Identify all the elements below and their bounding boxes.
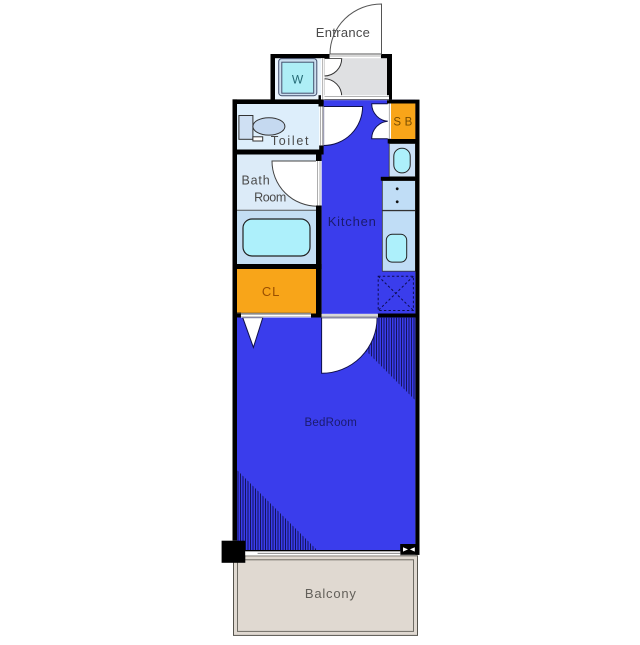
svg-text:Kitchen: Kitchen bbox=[328, 214, 377, 229]
svg-text:S B: S B bbox=[393, 117, 412, 129]
svg-text:Balcony: Balcony bbox=[305, 586, 357, 601]
svg-text:CL: CL bbox=[262, 284, 280, 299]
svg-text:Toilet: Toilet bbox=[271, 134, 310, 148]
svg-text:Bath: Bath bbox=[242, 174, 271, 188]
svg-text:W: W bbox=[292, 73, 304, 87]
svg-text:BedRoom: BedRoom bbox=[305, 417, 358, 429]
svg-text:Room: Room bbox=[254, 191, 286, 205]
svg-text:Entrance: Entrance bbox=[316, 25, 370, 40]
